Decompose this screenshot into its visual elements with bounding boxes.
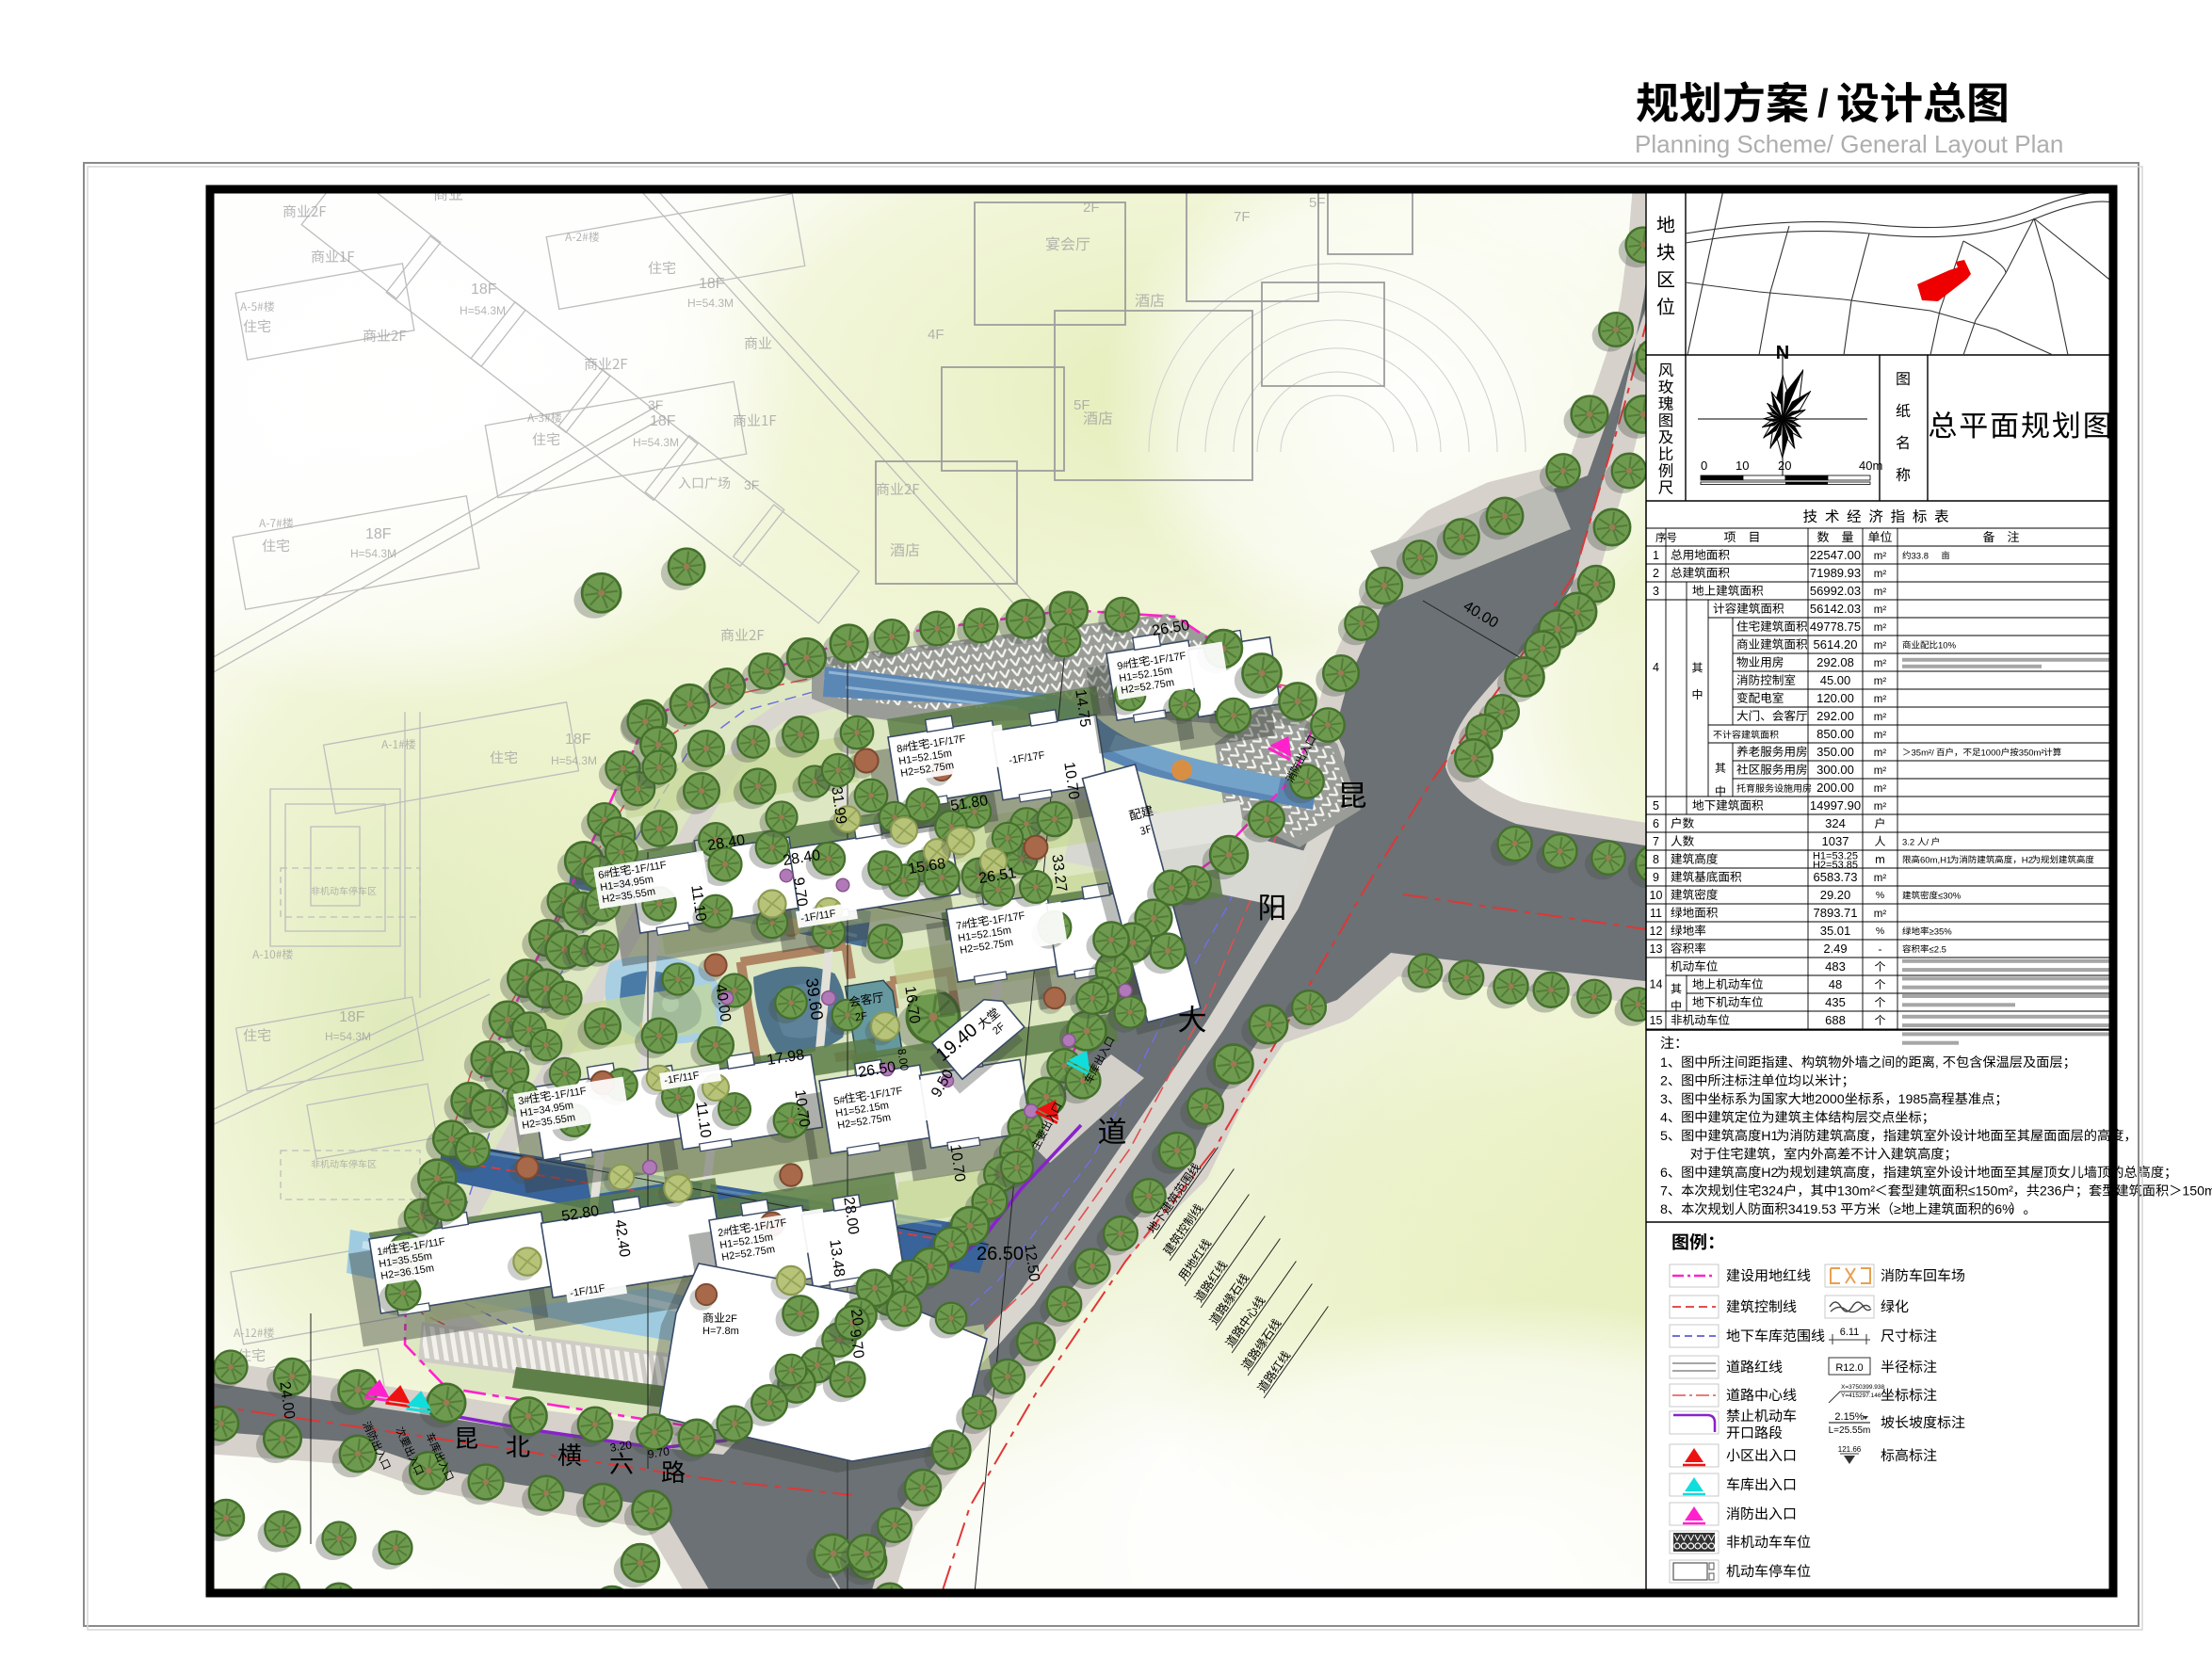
svg-text:,: ,: [1935, 1055, 1939, 1070]
svg-text:48: 48: [1829, 977, 1842, 991]
svg-text:35.01: 35.01: [1820, 924, 1851, 938]
svg-text:m²: m²: [1874, 801, 1887, 813]
svg-text:2F: 2F: [725, 1313, 737, 1325]
svg-text:324: 324: [1761, 1184, 1784, 1199]
svg-text:2: 2: [1660, 1074, 1668, 1089]
svg-text:≤2.5: ≤2.5: [1929, 944, 1946, 955]
svg-text:3: 3: [1653, 585, 1659, 598]
svg-text:6: 6: [1653, 817, 1659, 830]
svg-text:29.20: 29.20: [1820, 888, 1851, 902]
svg-text:8: 8: [1660, 1202, 1668, 1217]
svg-text:7893.71: 7893.71: [1814, 906, 1858, 920]
svg-text:121.66: 121.66: [1838, 1445, 1862, 1454]
svg-text:13: 13: [1650, 942, 1663, 956]
svg-text:H=7.8m: H=7.8m: [702, 1326, 739, 1337]
svg-text:236: 236: [2040, 1184, 2062, 1199]
svg-text:1000: 1000: [1981, 748, 2001, 758]
svg-text:5F: 5F: [1074, 397, 1090, 413]
svg-text:18F: 18F: [471, 282, 497, 298]
svg-text:71989.93: 71989.93: [1810, 566, 1861, 580]
svg-text:483: 483: [1825, 959, 1846, 974]
svg-text:m²: m²: [1874, 783, 1887, 795]
svg-text:35m²/: 35m²/: [1912, 748, 1935, 758]
svg-text:2000: 2000: [1815, 1092, 1845, 1107]
svg-text:14: 14: [1650, 977, 1663, 990]
svg-text:150m: 150m: [2182, 1184, 2212, 1199]
svg-text:6: 6: [1660, 1166, 1668, 1181]
svg-text:X=3750399.938: X=3750399.938: [1841, 1384, 1884, 1391]
svg-text:12: 12: [1650, 925, 1663, 938]
svg-text:324: 324: [1825, 816, 1846, 830]
svg-text:56992.03: 56992.03: [1810, 584, 1861, 598]
svg-text:m²: m²: [1874, 551, 1887, 562]
svg-text:≥: ≥: [1894, 1202, 1901, 1217]
svg-text:m²: m²: [1874, 748, 1887, 759]
svg-text:292.08: 292.08: [1816, 655, 1854, 669]
svg-text:0: 0: [1701, 459, 1707, 473]
svg-text:H=54.3M: H=54.3M: [325, 1030, 371, 1043]
svg-text:m²: m²: [1874, 909, 1887, 920]
svg-text:m²: m²: [1874, 587, 1887, 598]
svg-text:H=54.3M: H=54.3M: [687, 297, 734, 310]
svg-text:4F: 4F: [928, 327, 945, 343]
svg-text:6%: 6%: [1994, 1202, 2014, 1217]
svg-text:8: 8: [1653, 853, 1659, 866]
svg-text:300.00: 300.00: [1816, 763, 1854, 777]
svg-text:120.00: 120.00: [1816, 691, 1854, 705]
svg-text:R12.0: R12.0: [1835, 1362, 1863, 1374]
svg-text:H2: H2: [2022, 855, 2033, 865]
svg-text:3: 3: [1660, 1092, 1668, 1107]
svg-text:1: 1: [1660, 1055, 1668, 1070]
svg-text:2.15%: 2.15%: [1834, 1411, 1864, 1423]
svg-text:H=54.3M: H=54.3M: [633, 436, 679, 449]
svg-text:m²: m²: [1874, 873, 1887, 884]
svg-text:m²: m²: [1874, 694, 1887, 705]
svg-text:m²: m²: [1874, 730, 1887, 741]
svg-text:9: 9: [1653, 871, 1659, 884]
svg-text:22547.00: 22547.00: [1810, 548, 1861, 562]
svg-text:3.2: 3.2: [1902, 837, 1914, 847]
svg-text:%: %: [1876, 890, 1884, 901]
svg-text:6583.73: 6583.73: [1814, 870, 1858, 884]
svg-text:7: 7: [1653, 835, 1659, 848]
svg-text:688: 688: [1825, 1013, 1846, 1027]
svg-text:3F: 3F: [744, 477, 759, 492]
svg-text:850.00: 850.00: [1816, 727, 1854, 741]
svg-text:20: 20: [1778, 459, 1791, 473]
svg-text:1037: 1037: [1822, 834, 1849, 848]
svg-text:m²: m²: [1874, 765, 1887, 777]
svg-text:5: 5: [1653, 799, 1659, 813]
svg-text:m²: m²: [1874, 676, 1887, 687]
svg-text:33.8: 33.8: [1912, 551, 1929, 561]
svg-text:130m²: 130m²: [1837, 1184, 1875, 1199]
svg-text:18F: 18F: [699, 276, 725, 292]
svg-text:H2: H2: [1761, 1166, 1778, 1181]
svg-text:H=54.3M: H=54.3M: [350, 547, 396, 560]
svg-text:Y=415297.146: Y=415297.146: [1841, 1392, 1881, 1399]
svg-text:m²: m²: [1874, 640, 1887, 652]
svg-text:435: 435: [1825, 995, 1846, 1009]
svg-text:2.49: 2.49: [1823, 942, 1847, 956]
svg-text:6.11: 6.11: [1840, 1327, 1860, 1338]
svg-text:2F: 2F: [1083, 200, 1100, 216]
svg-text:m²: m²: [1874, 622, 1887, 634]
svg-text:≤30%: ≤30%: [1938, 891, 1962, 901]
svg-text:≥35%: ≥35%: [1929, 926, 1953, 937]
svg-text:H=54.3M: H=54.3M: [460, 304, 506, 317]
svg-text:49778.75: 49778.75: [1810, 620, 1861, 634]
svg-text:60m,H1: 60m,H1: [1920, 855, 1951, 865]
svg-text:/: /: [1926, 837, 1929, 847]
svg-text:≤150m²: ≤150m²: [1968, 1184, 2013, 1199]
svg-text:18F: 18F: [365, 526, 392, 542]
svg-text:200.00: 200.00: [1816, 781, 1854, 795]
svg-text:18F: 18F: [339, 1009, 365, 1025]
svg-text:1985: 1985: [1898, 1092, 1929, 1107]
svg-text:m²: m²: [1874, 569, 1887, 580]
svg-text:L=25.55m: L=25.55m: [1829, 1425, 1871, 1436]
svg-text:40m: 40m: [1859, 459, 1882, 473]
svg-text:3419.53: 3419.53: [1788, 1202, 1836, 1217]
svg-text:26.50: 26.50: [977, 1244, 1024, 1264]
svg-text:7F: 7F: [1234, 209, 1251, 225]
svg-text:/: /: [1817, 81, 1829, 125]
svg-text:292.00: 292.00: [1816, 709, 1854, 723]
svg-text:4: 4: [1660, 1111, 1668, 1126]
svg-text:m²: m²: [1874, 658, 1887, 669]
svg-text:10%: 10%: [1938, 640, 1957, 651]
svg-text:2F: 2F: [854, 1010, 868, 1023]
svg-text:5614.20: 5614.20: [1814, 637, 1858, 652]
svg-text:Planning Scheme/ General Layou: Planning Scheme/ General Layout Plan: [1635, 130, 2063, 158]
svg-text:10: 10: [1736, 459, 1749, 473]
svg-text:5F: 5F: [1309, 195, 1326, 211]
svg-text:1: 1: [1653, 549, 1659, 562]
svg-text:-: -: [1879, 942, 1882, 956]
svg-text:m²: m²: [1874, 712, 1887, 723]
svg-text:7: 7: [1660, 1184, 1668, 1199]
svg-text:5: 5: [1660, 1129, 1668, 1144]
svg-text:350m²: 350m²: [2019, 748, 2044, 758]
svg-text:350.00: 350.00: [1816, 745, 1854, 759]
svg-text:H=54.3M: H=54.3M: [551, 754, 597, 767]
svg-text:m²: m²: [1874, 604, 1887, 616]
svg-text:3F: 3F: [648, 397, 663, 412]
svg-text:18F: 18F: [565, 732, 591, 748]
svg-text:56142.03: 56142.03: [1810, 602, 1861, 616]
svg-text:14997.90: 14997.90: [1810, 798, 1861, 813]
svg-text:H1: H1: [1761, 1129, 1778, 1144]
svg-text:11: 11: [1650, 907, 1662, 920]
svg-text:2: 2: [1653, 567, 1659, 580]
svg-text:15: 15: [1650, 1014, 1663, 1027]
svg-text:4: 4: [1653, 661, 1659, 674]
svg-text:%: %: [1876, 926, 1884, 937]
svg-text:10: 10: [1650, 889, 1663, 902]
svg-text:18F: 18F: [650, 413, 676, 429]
svg-text:20: 20: [848, 1308, 865, 1327]
svg-text:45.00: 45.00: [1820, 673, 1851, 687]
